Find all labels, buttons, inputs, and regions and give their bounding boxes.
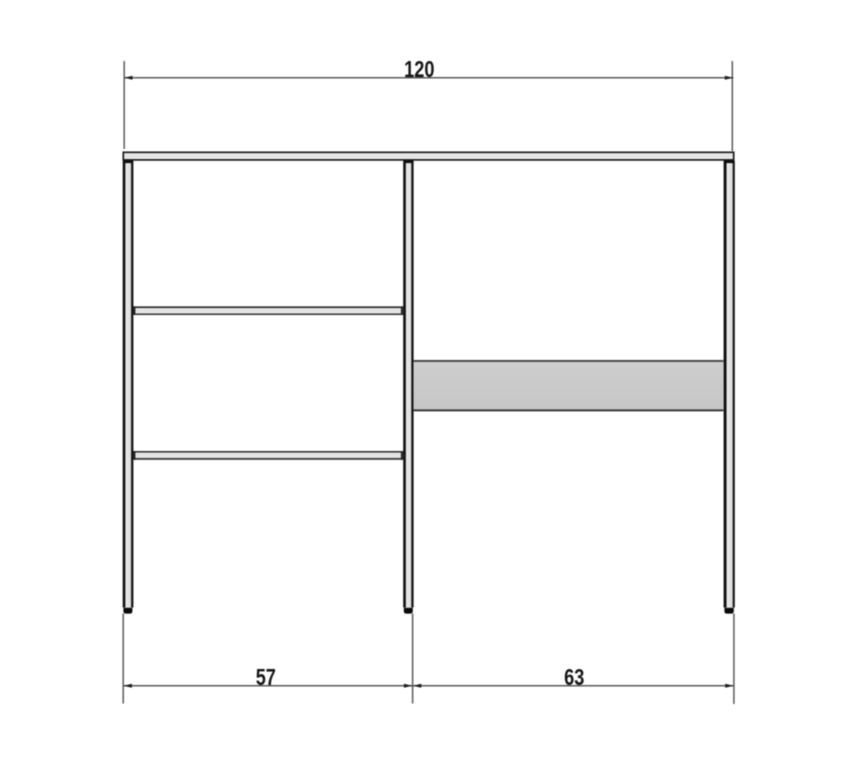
svg-text:63: 63	[564, 665, 584, 691]
svg-text:120: 120	[404, 57, 434, 83]
svg-text:57: 57	[256, 665, 276, 691]
